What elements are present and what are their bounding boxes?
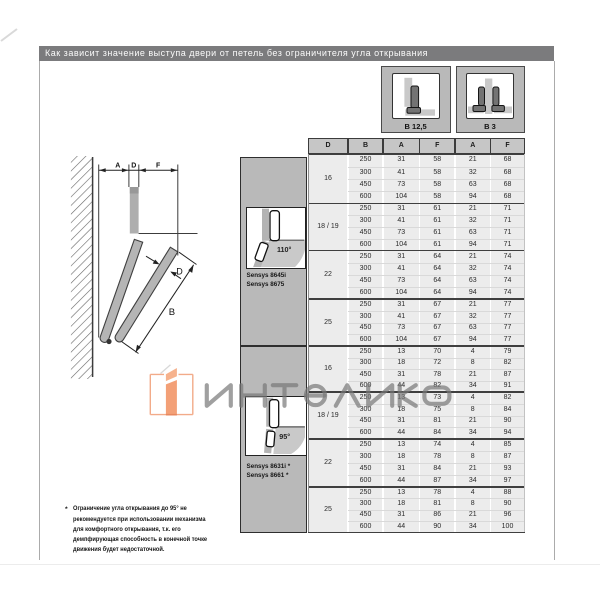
- svg-text:B: B: [169, 307, 175, 318]
- svg-text:F: F: [156, 163, 161, 170]
- svg-text:110°: 110°: [277, 245, 292, 254]
- svg-text:95°: 95°: [280, 432, 291, 441]
- svg-text:D: D: [131, 163, 136, 170]
- svg-text:D: D: [176, 267, 183, 277]
- svg-text:A: A: [115, 163, 120, 170]
